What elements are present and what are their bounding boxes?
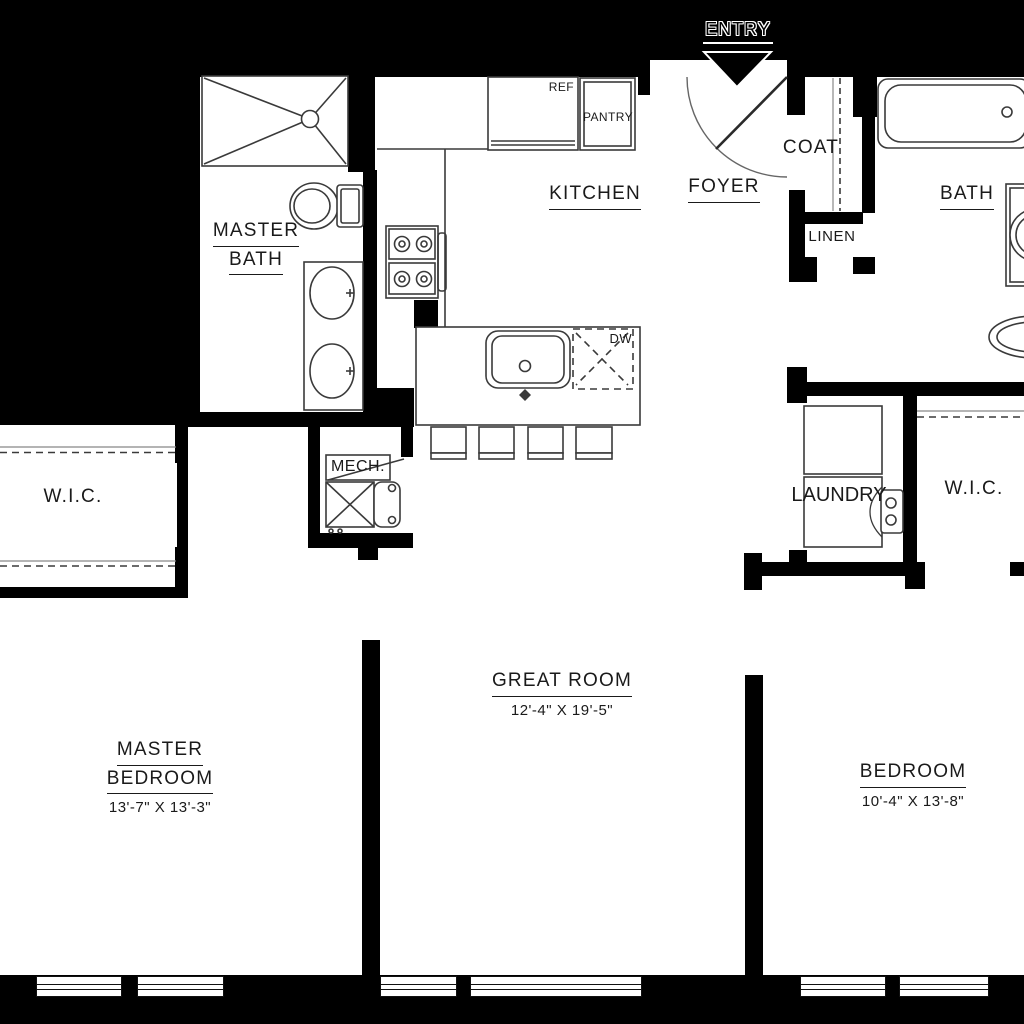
wic-right-label: W.I.C.	[940, 476, 1008, 503]
window	[380, 976, 457, 997]
wall-mech-south	[308, 533, 413, 548]
dishwasher-label: DW	[598, 330, 632, 348]
wall-bedroom-west	[745, 675, 763, 978]
master-bedroom-label: MASTER BEDROOM 13'-7" X 13'-3"	[76, 737, 244, 818]
wall-island-anchor	[414, 300, 438, 328]
wall-master-great	[362, 640, 380, 978]
wall-top-left	[186, 60, 650, 77]
floor-plan: ENTRY MASTER BATH KITCHEN FOYER COAT LIN…	[0, 0, 1024, 1024]
refrigerator-label: REF	[538, 79, 574, 96]
master-bath-label: MASTER BATH	[194, 218, 318, 275]
mech-label: MECH.	[326, 456, 390, 478]
wall-wic-left-upper	[175, 412, 188, 463]
laundry-label: LAUNDRY	[789, 481, 889, 509]
foyer-label: FOYER	[682, 174, 766, 203]
wall-bath-kitchen	[363, 170, 377, 392]
wall-bath-south	[807, 382, 1024, 396]
wall-bedroom-door-block	[744, 553, 762, 590]
bath-label: BATH	[934, 181, 1000, 210]
window	[800, 976, 886, 997]
window	[36, 976, 122, 997]
wall-wic-right-block	[905, 562, 925, 589]
window	[137, 976, 224, 997]
wall-mech-west	[308, 427, 320, 548]
wall-wic-left-south	[0, 587, 188, 598]
linen-label: LINEN	[802, 226, 862, 247]
wic-left-label: W.I.C.	[40, 484, 106, 511]
wall-linen-se	[853, 257, 875, 274]
wall-entry-jamb-right	[787, 60, 805, 115]
floor-wic-left	[0, 425, 177, 598]
wall-wic-right-edge	[1010, 562, 1024, 576]
wall-bath-sw-corner	[787, 367, 807, 403]
wall-laundry-wic	[903, 396, 917, 566]
wall-entry-jamb-left	[638, 60, 650, 95]
wall-shower-east	[348, 60, 375, 172]
wall-linen-north	[789, 212, 863, 224]
window	[470, 976, 642, 997]
wall-mech-east-stub	[401, 427, 413, 457]
kitchen-label: KITCHEN	[540, 181, 650, 210]
entry-label: ENTRY	[703, 19, 773, 44]
wall-laundry-south	[747, 562, 925, 576]
wall-top-right	[787, 60, 1024, 77]
wall-linen-sw	[789, 257, 817, 282]
wall-mech-bottom-stub	[358, 548, 378, 560]
great-room-label: GREAT ROOM 12'-4" X 19'-5"	[476, 668, 648, 721]
bedroom-label: BEDROOM 10'-4" X 13'-8"	[829, 759, 997, 812]
coat-label: COAT	[775, 135, 847, 162]
wall-masterbath-south	[186, 412, 413, 427]
wall-laundry-stub	[789, 550, 807, 562]
window	[899, 976, 989, 997]
wall-coat-east	[862, 60, 875, 213]
pantry-label: PANTRY	[582, 109, 634, 126]
